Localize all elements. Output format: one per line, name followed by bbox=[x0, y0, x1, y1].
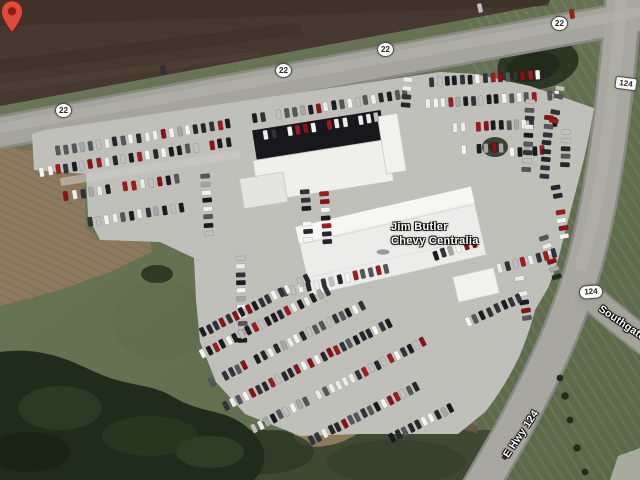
route-shield-22: 22 bbox=[377, 42, 394, 57]
route-shield-22: 22 bbox=[55, 103, 72, 118]
route-shield-124: 124 bbox=[579, 284, 604, 300]
map-pin-icon[interactable] bbox=[0, 0, 24, 34]
map-canvas[interactable] bbox=[0, 0, 640, 480]
satellite-map[interactable]: 22 22 22 22 124 124 Southgate E Hwy 124 … bbox=[0, 0, 640, 480]
bush bbox=[141, 265, 173, 283]
route-shield-22: 22 bbox=[551, 16, 568, 31]
route-shield-22: 22 bbox=[275, 63, 292, 78]
